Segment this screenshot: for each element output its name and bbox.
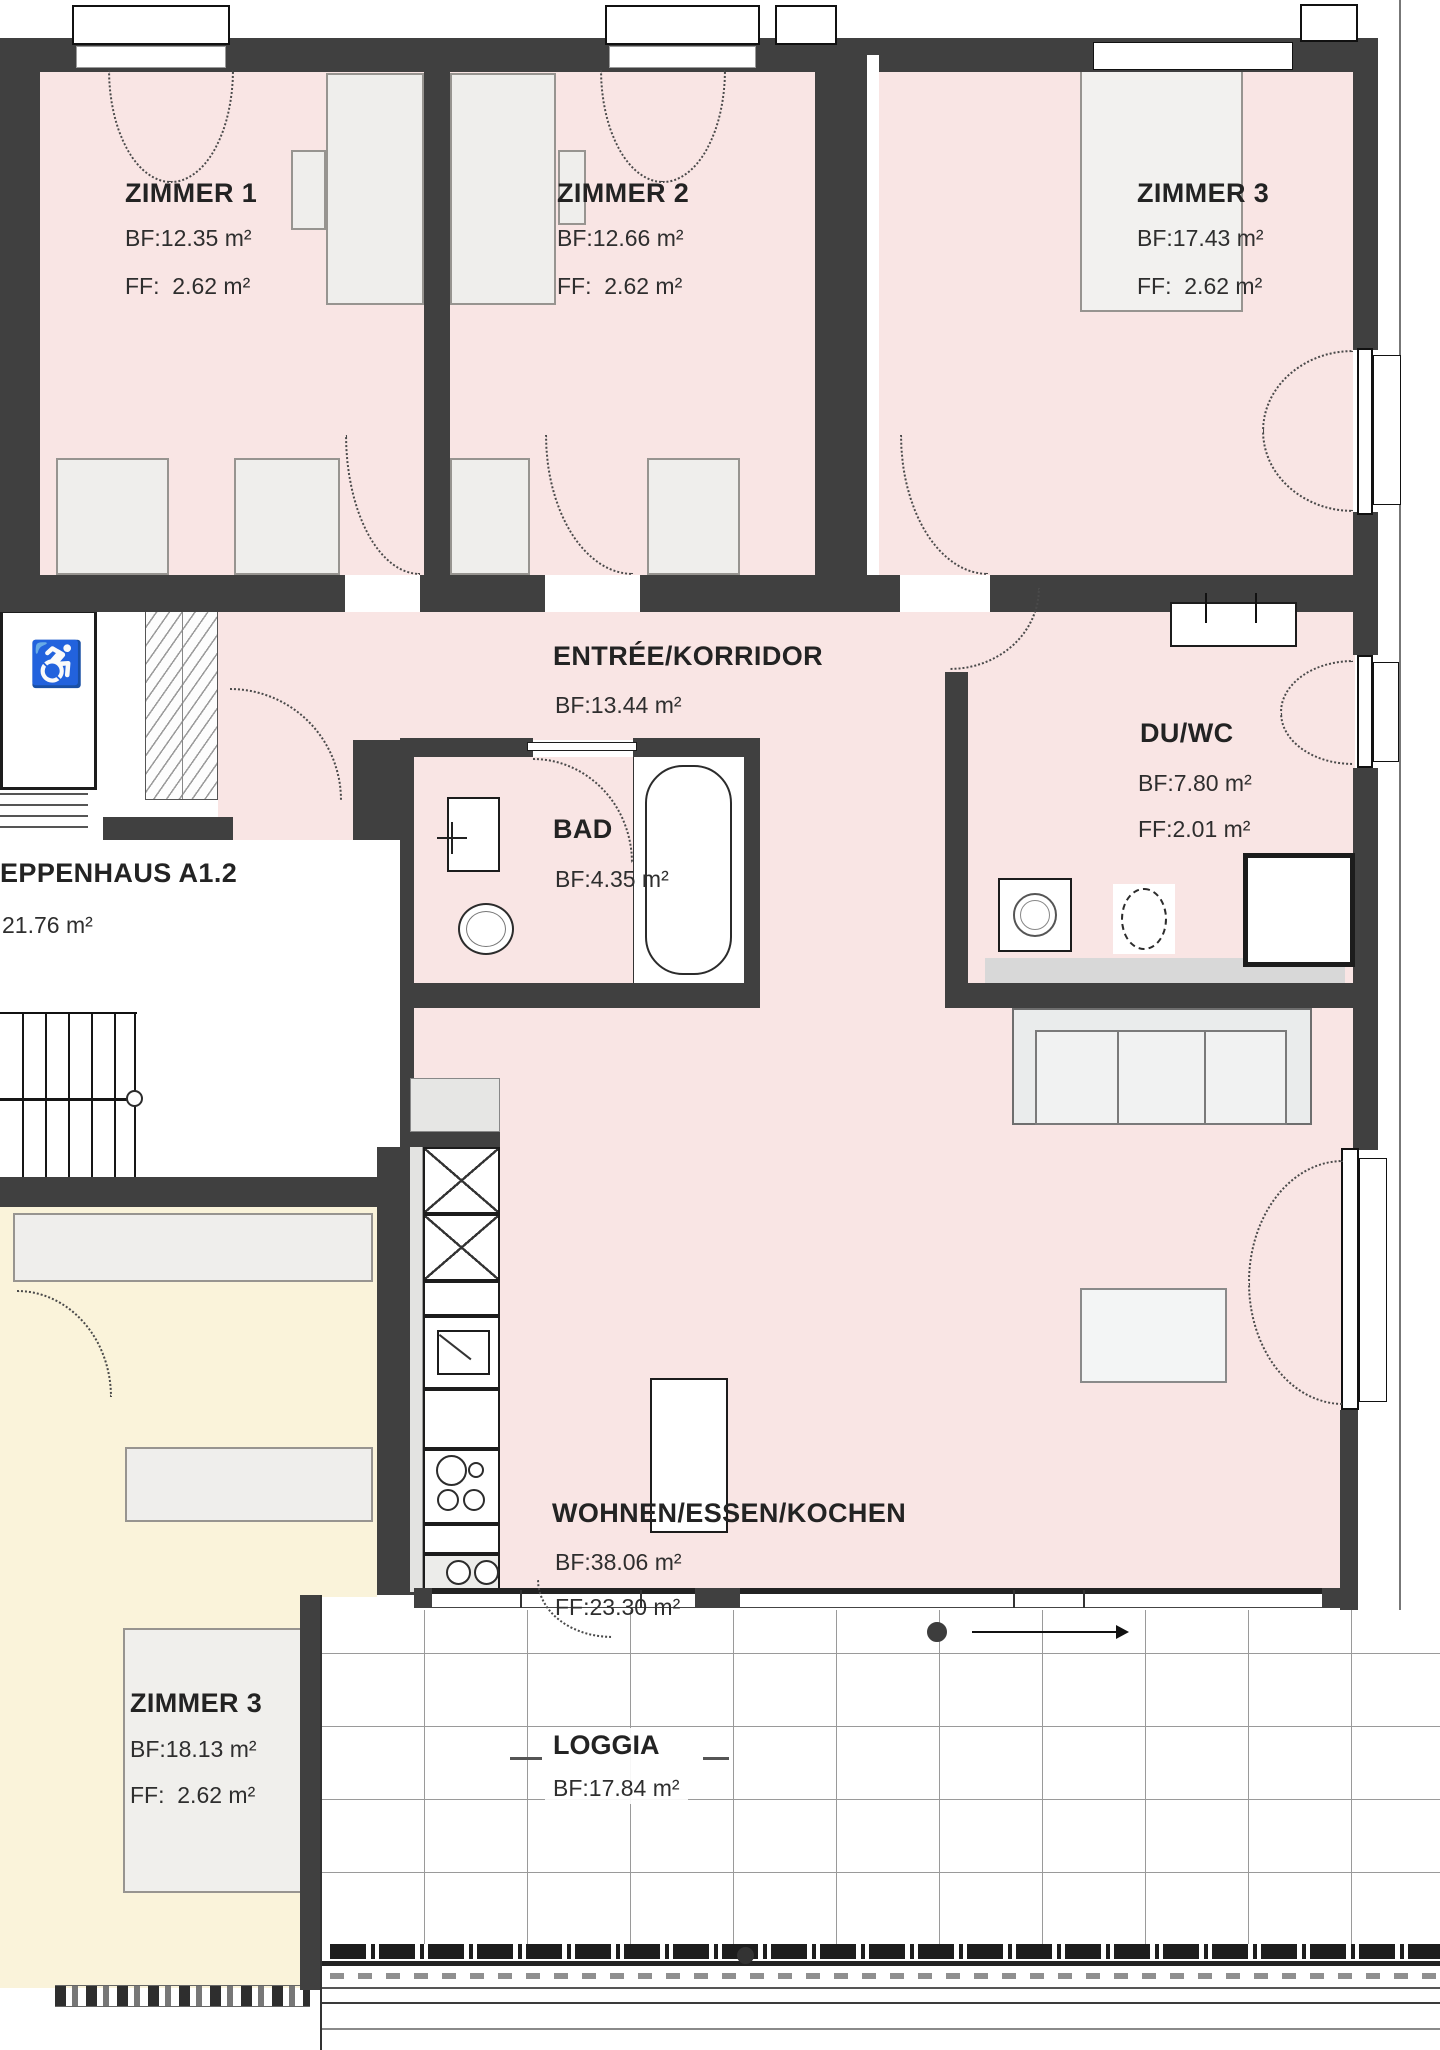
wall	[0, 1177, 377, 1207]
cooktop-burner	[437, 1489, 459, 1511]
annotation-dot	[927, 1622, 947, 1642]
duct-shaft	[410, 1078, 500, 1132]
door-post	[695, 1588, 740, 1608]
room-label-zimmer1: ZIMMER 1	[125, 178, 257, 209]
room-label-zimmer3: ZIMMER 3	[1137, 178, 1269, 209]
vanity-tap	[1205, 593, 1207, 623]
stair-rail	[0, 1098, 137, 1101]
room-area-ff: FF:2.01 m²	[1138, 816, 1250, 843]
wall	[300, 1595, 322, 1990]
room-label-wohnen: WOHNEN/ESSEN/KOCHEN	[552, 1498, 906, 1529]
room-area-ff: FF: 2.62 m²	[1137, 273, 1262, 300]
vanity-tap	[1255, 593, 1257, 623]
room-area-bf: BF:17.43 m²	[1137, 225, 1264, 252]
stair-tread	[114, 1014, 116, 1179]
wall	[0, 38, 40, 575]
kitchen-tall-cabinet	[423, 1214, 500, 1281]
room-area-ff: FF: 2.62 m²	[125, 273, 250, 300]
basin	[474, 1560, 499, 1585]
wall	[400, 740, 414, 990]
room-area-bf: BF:13.44 m²	[555, 692, 682, 719]
shaft-hatch	[145, 590, 218, 800]
window-swing-arc	[1280, 660, 1353, 765]
floor-plan: ♿	[0, 0, 1440, 2050]
wall	[640, 575, 900, 612]
wall	[420, 575, 545, 612]
window-sash	[1359, 1158, 1387, 1402]
window-swing-arc	[108, 70, 234, 183]
room-area-ff: FF:23.30 m²	[555, 1594, 680, 1621]
wardrobe	[56, 458, 169, 575]
window-sash	[1373, 662, 1399, 762]
elevator: ♿	[0, 610, 97, 790]
basin	[446, 1560, 471, 1585]
kitchen-cabinet	[423, 1281, 500, 1316]
sliding-door	[527, 742, 637, 751]
wall	[0, 575, 345, 612]
wall	[424, 40, 450, 575]
window	[72, 5, 230, 45]
railing-dot	[737, 1947, 754, 1964]
loggia-railing	[330, 1944, 1440, 1959]
room-area-bf: BF:4.35 m²	[555, 866, 669, 893]
window	[1357, 655, 1373, 768]
window	[775, 5, 837, 45]
wall-seam	[867, 55, 879, 575]
room-label-duwc: DU/WC	[1140, 718, 1233, 749]
wardrobe	[647, 458, 740, 575]
room-area-bf: BF:18.13 m²	[130, 1736, 257, 1763]
loggia-railing-dashes	[330, 1973, 1440, 1979]
wardrobe	[450, 458, 530, 575]
window-sash	[1373, 355, 1401, 505]
shelf	[125, 1447, 373, 1522]
wall	[1353, 38, 1378, 350]
stair-tread	[68, 1014, 70, 1179]
loggia-railing-base	[322, 1961, 1440, 1966]
room-label-entree: ENTRÉE/KORRIDOR	[553, 641, 823, 672]
loggia-label-group: LOGGIA BF:17.84 m²	[545, 1728, 688, 1804]
stair-tread	[22, 1014, 24, 1179]
staircase	[0, 1012, 137, 1179]
sofa-seat	[1035, 1030, 1287, 1125]
wall	[400, 738, 533, 757]
room-area-ff: FF: 2.62 m²	[130, 1782, 255, 1809]
room-area-bf: BF:7.80 m²	[1138, 770, 1252, 797]
wall	[744, 740, 760, 1008]
wall	[633, 738, 760, 757]
window-swing-arc	[1248, 1160, 1343, 1405]
landing-steps	[0, 788, 88, 828]
window	[1093, 42, 1293, 70]
vanity	[1170, 602, 1297, 647]
cooktop-burner	[463, 1489, 485, 1511]
window	[1300, 4, 1358, 42]
door-post	[1322, 1588, 1340, 1608]
annotation-arrow	[972, 1631, 1118, 1633]
loggia-line	[322, 1987, 1440, 1989]
door-post	[414, 1588, 432, 1608]
boundary-line	[322, 2028, 1440, 2030]
wall	[815, 40, 867, 575]
room-area: 21.76 m²	[2, 912, 93, 939]
wall	[410, 1132, 500, 1147]
window-swing-arc	[1262, 350, 1353, 512]
wardrobe	[234, 458, 340, 575]
toilet-bowl	[466, 911, 506, 947]
annotation-arrowhead	[1116, 1625, 1129, 1639]
sofa-cushion-divider	[1117, 1030, 1119, 1125]
kitchen-cabinet	[423, 1524, 500, 1554]
window-sill	[609, 46, 756, 68]
wall	[377, 1147, 414, 1595]
wall	[103, 817, 233, 840]
stair-tread	[45, 1014, 47, 1179]
window-swing-arc	[600, 70, 726, 183]
wall	[945, 672, 968, 983]
window	[1341, 1148, 1359, 1410]
toilet	[1121, 888, 1167, 950]
wall	[1353, 768, 1378, 1150]
window	[605, 5, 760, 45]
boundary-line	[322, 2002, 1440, 2004]
wall	[945, 983, 1355, 1008]
coffee-table	[1080, 1288, 1227, 1383]
door-divider	[1083, 1590, 1085, 1608]
kitchen-counter-edge	[410, 1147, 423, 1592]
loggia-tiles	[322, 1610, 1440, 1945]
room-area-bf: BF:38.06 m²	[555, 1549, 682, 1576]
sink	[447, 797, 500, 872]
room-area-bf: BF:12.35 m²	[125, 225, 252, 252]
room-label-zimmer2: ZIMMER 2	[557, 178, 689, 209]
window-sill	[76, 46, 226, 68]
room-label-treppenhaus: EPPENHAUS A1.2	[0, 858, 237, 889]
door-divider	[1013, 1590, 1015, 1608]
shower	[1243, 853, 1355, 967]
loggia-tick	[703, 1757, 729, 1760]
room-area-bf: BF:12.66 m²	[557, 225, 684, 252]
wall	[400, 983, 760, 1008]
neighbor-window-band	[55, 1985, 310, 2007]
room-label-zimmer3-left: ZIMMER 3	[130, 1688, 262, 1719]
cooktop-burner	[468, 1462, 484, 1478]
cooktop-burner	[436, 1455, 467, 1486]
stair-tread	[91, 1014, 93, 1179]
loggia-tick	[510, 1757, 542, 1760]
room-area-ff: FF: 2.62 m²	[557, 273, 682, 300]
chair	[291, 150, 326, 230]
loggia-left-line	[320, 1595, 322, 2050]
room-label-loggia: LOGGIA	[553, 1730, 680, 1761]
room-area-bf: BF:17.84 m²	[553, 1775, 680, 1802]
sink-tap	[451, 822, 453, 854]
wardrobe	[13, 1213, 373, 1282]
desk	[326, 73, 424, 305]
kitchen-cabinet	[423, 1389, 500, 1449]
washing-machine-drum-inner	[1020, 900, 1050, 930]
wheelchair-icon: ♿	[29, 643, 84, 687]
kitchen-tall-cabinet	[423, 1147, 500, 1214]
desk	[450, 73, 556, 305]
sofa-cushion-divider	[1204, 1030, 1206, 1125]
room-label-bad: BAD	[553, 814, 613, 845]
window	[1357, 348, 1373, 515]
stair-rail-post	[126, 1090, 143, 1107]
door-divider	[520, 1590, 522, 1608]
